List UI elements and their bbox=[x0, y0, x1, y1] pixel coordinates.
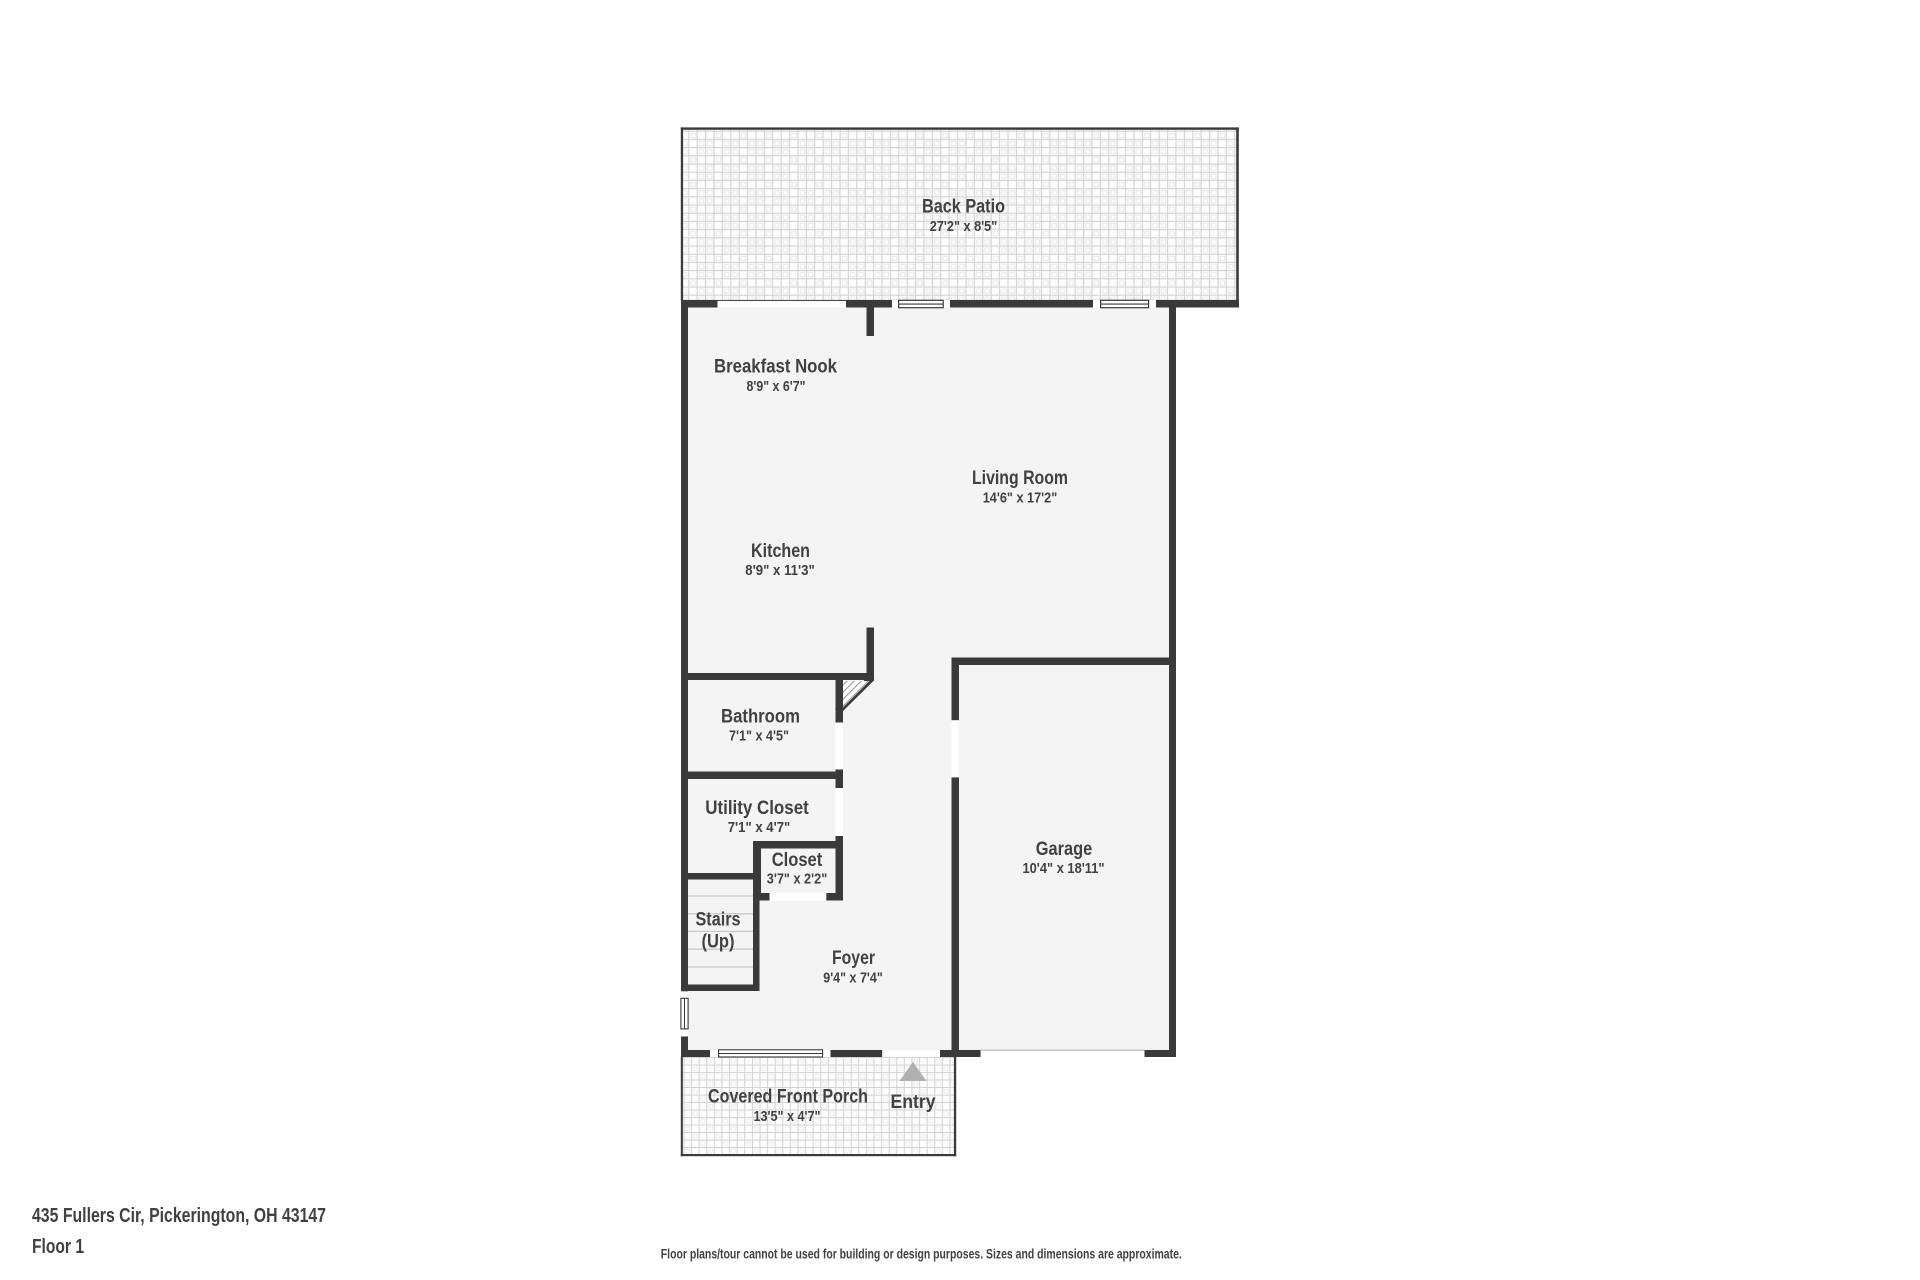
svg-text:8'9" x 11'3": 8'9" x 11'3" bbox=[745, 563, 815, 579]
svg-text:Breakfast Nook: Breakfast Nook bbox=[714, 357, 837, 378]
svg-text:14'6" x 17'2": 14'6" x 17'2" bbox=[983, 491, 1058, 507]
svg-text:Bathroom: Bathroom bbox=[721, 707, 800, 728]
svg-text:Garage: Garage bbox=[1036, 839, 1093, 860]
svg-text:Foyer: Foyer bbox=[832, 948, 875, 969]
svg-text:10'4" x 18'11": 10'4" x 18'11" bbox=[1023, 861, 1105, 877]
svg-text:13'5" x 4'7": 13'5" x 4'7" bbox=[754, 1109, 821, 1125]
svg-text:7'1" x 4'7": 7'1" x 4'7" bbox=[728, 820, 791, 836]
svg-text:Utility Closet: Utility Closet bbox=[705, 798, 809, 819]
svg-text:27'2" x 8'5": 27'2" x 8'5" bbox=[930, 219, 998, 235]
svg-text:9'4" x 7'4": 9'4" x 7'4" bbox=[823, 971, 883, 987]
svg-text:Floor plans/tour cannot be use: Floor plans/tour cannot be used for buil… bbox=[661, 1247, 1182, 1262]
svg-text:Covered Front Porch: Covered Front Porch bbox=[708, 1087, 868, 1108]
svg-text:Stairs: Stairs bbox=[696, 910, 741, 931]
svg-text:Kitchen: Kitchen bbox=[751, 541, 810, 562]
svg-text:8'9" x 6'7": 8'9" x 6'7" bbox=[747, 379, 806, 395]
svg-text:(Up): (Up) bbox=[702, 932, 735, 953]
svg-text:Closet: Closet bbox=[772, 850, 823, 871]
svg-text:Floor 1: Floor 1 bbox=[32, 1236, 84, 1258]
svg-text:Entry: Entry bbox=[891, 1092, 936, 1113]
svg-text:Living Room: Living Room bbox=[972, 468, 1068, 489]
svg-text:Back Patio: Back Patio bbox=[922, 197, 1005, 218]
svg-text:435 Fullers Cir, Pickerington,: 435 Fullers Cir, Pickerington, OH 43147 bbox=[32, 1205, 326, 1227]
svg-text:3'7" x 2'2": 3'7" x 2'2" bbox=[767, 872, 828, 888]
svg-text:7'1" x 4'5": 7'1" x 4'5" bbox=[729, 729, 789, 745]
